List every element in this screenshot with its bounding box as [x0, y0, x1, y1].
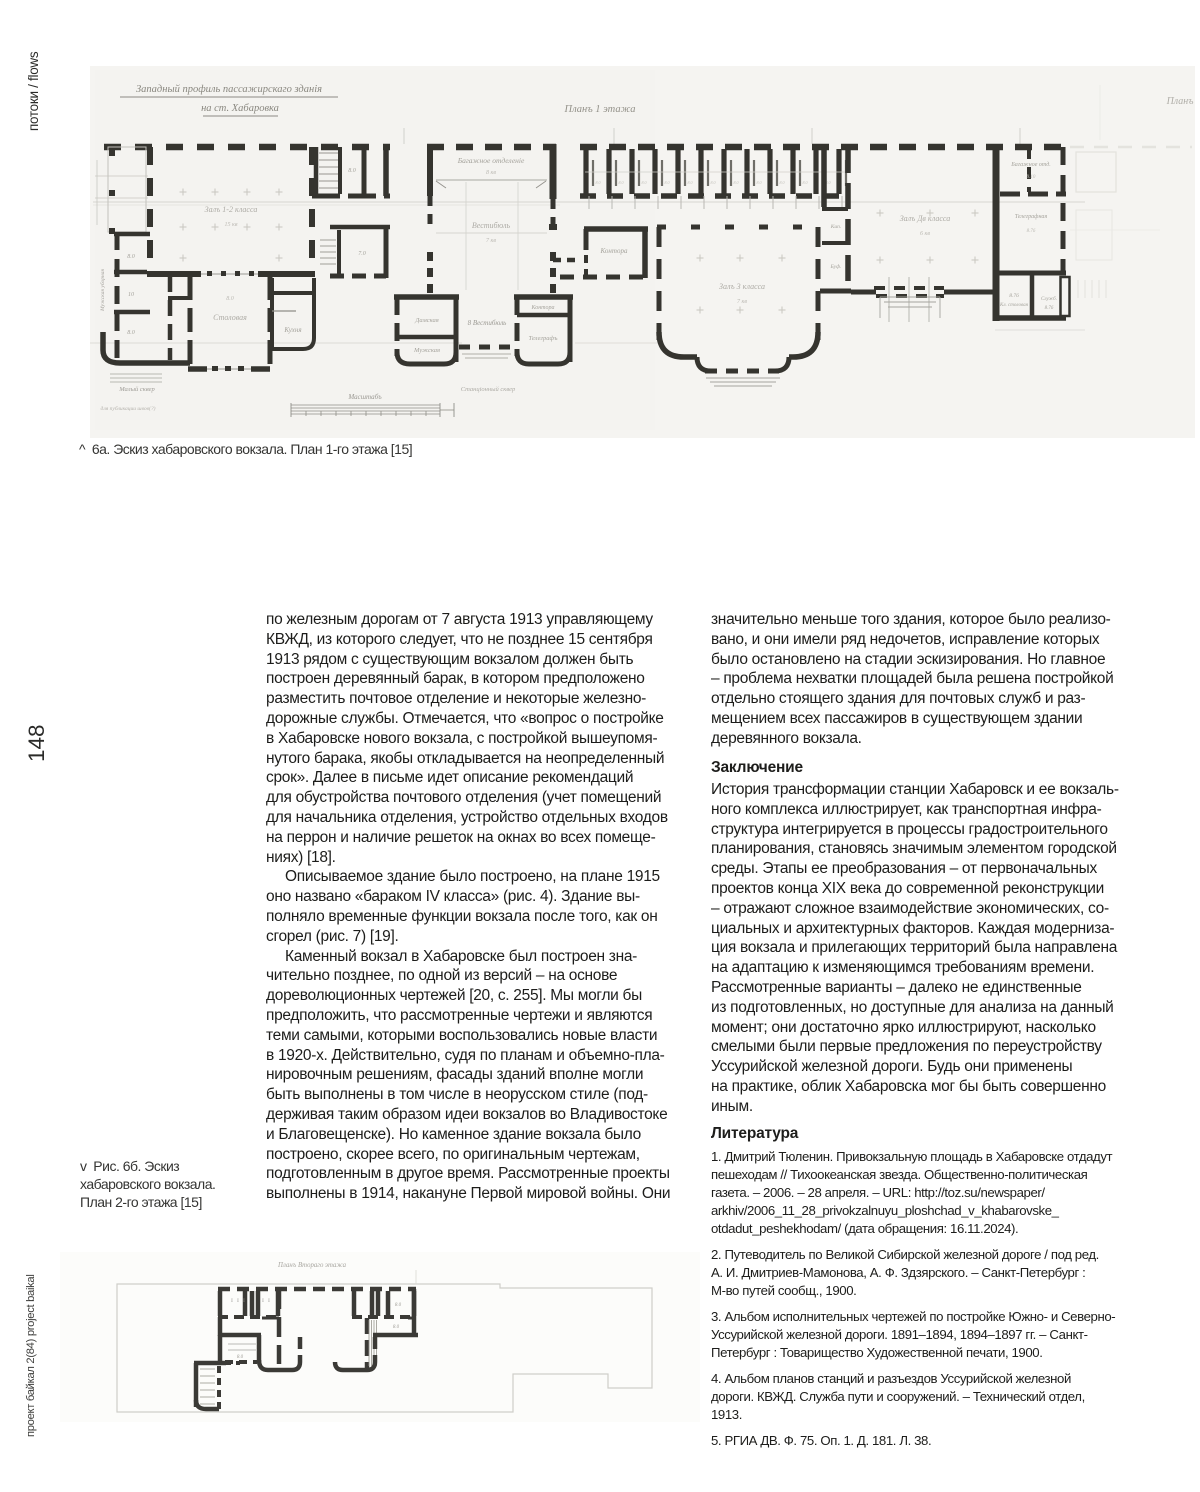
svg-text:8.0: 8.0 — [665, 180, 670, 185]
svg-text:8.76: 8.76 — [1045, 306, 1054, 311]
svg-text:8.0: 8.0 — [642, 180, 647, 185]
svg-text:Масштабъ: Масштабъ — [347, 393, 382, 401]
svg-text:Малый сквер: Малый сквер — [118, 386, 155, 393]
svg-text:8.76: 8.76 — [1009, 293, 1019, 299]
svg-text:Контора: Контора — [600, 247, 628, 255]
svg-text:8.0: 8.0 — [688, 180, 693, 185]
svg-text:15 кв: 15 кв — [225, 222, 238, 228]
svg-text:Телеграфъ: Телеграфъ — [528, 335, 558, 342]
svg-text:для публикации швов(?): для публикации швов(?) — [101, 405, 156, 412]
svg-text:Кип.: Кип. — [830, 224, 842, 230]
svg-text:8.76: 8.76 — [1027, 229, 1036, 234]
svg-text:Служб.: Служб. — [1041, 297, 1057, 302]
svg-text:Планъ: Планъ — [1166, 96, 1194, 107]
svg-text:8.0: 8.0 — [127, 330, 135, 336]
svg-text:Кухня: Кухня — [283, 326, 301, 334]
svg-text:8.0: 8.0 — [395, 1303, 402, 1308]
svg-text:Залъ 3 класса: Залъ 3 класса — [719, 282, 765, 291]
svg-text:Кл. столовая: Кл. столовая — [999, 303, 1029, 308]
svg-text:8.0: 8.0 — [226, 296, 234, 302]
svg-text:Вестибюль: Вестибюль — [472, 221, 511, 230]
svg-text:7.0: 7.0 — [358, 251, 366, 257]
svg-text:8.0: 8.0 — [757, 180, 762, 185]
svg-text:8.0: 8.0 — [393, 1325, 400, 1330]
svg-text:8 кв: 8 кв — [486, 170, 496, 176]
svg-text:Телеграфная: Телеграфная — [1015, 213, 1048, 220]
svg-text:Залъ Дв класса: Залъ Дв класса — [900, 214, 951, 223]
svg-text:Столовая: Столовая — [213, 313, 247, 322]
svg-text:Мужская уборная: Мужская уборная — [99, 269, 106, 313]
svg-text:8.0: 8.0 — [711, 180, 716, 185]
svg-text:6 кв: 6 кв — [920, 231, 930, 237]
svg-text:Залъ 1-2 класса: Залъ 1-2 класса — [205, 205, 258, 214]
svg-text:Станцiонный сквер: Станцiонный сквер — [461, 386, 516, 393]
svg-text:7 кв: 7 кв — [737, 299, 747, 305]
svg-text:Буф.: Буф. — [830, 263, 842, 270]
svg-text:Западный профиль пассажирскаго: Западный профиль пассажирскаго зданiя — [136, 84, 322, 95]
svg-text:8.0: 8.0 — [803, 180, 808, 185]
svg-text:8 Вестибюль: 8 Вестибюль — [468, 319, 507, 327]
svg-text:9.10: 9.10 — [1027, 175, 1036, 180]
svg-text:8.0: 8.0 — [127, 254, 135, 260]
svg-text:8.0: 8.0 — [348, 168, 356, 174]
svg-text:8.0: 8.0 — [619, 180, 624, 185]
svg-text:8.0: 8.0 — [734, 180, 739, 185]
svg-text:8.0: 8.0 — [780, 180, 785, 185]
svg-text:Багажное отделенiе: Багажное отделенiе — [457, 156, 525, 165]
svg-text:8.0: 8.0 — [237, 1355, 244, 1360]
svg-text:Дамская: Дамская — [414, 317, 439, 324]
svg-text:Контора: Контора — [530, 305, 554, 311]
svg-text:Планъ Втораго этажа: Планъ Втораго этажа — [277, 1262, 347, 1269]
svg-text:Мужская: Мужская — [413, 347, 440, 354]
svg-text:7 кв: 7 кв — [486, 238, 496, 244]
svg-text:10: 10 — [128, 292, 134, 298]
svg-text:8.0: 8.0 — [596, 180, 601, 185]
svg-text:Планъ 1 этажа: Планъ 1 этажа — [563, 104, 635, 115]
svg-text:на ст. Хабаровка: на ст. Хабаровка — [201, 103, 279, 114]
svg-text:Багажное отд.: Багажное отд. — [1010, 161, 1050, 168]
